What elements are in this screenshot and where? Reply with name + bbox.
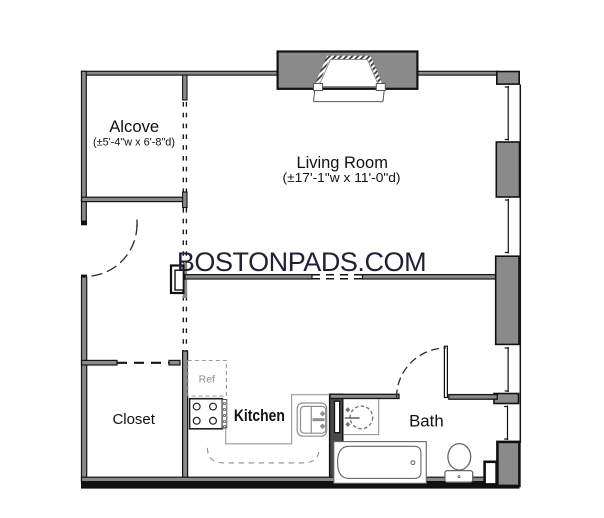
svg-text:Ref: Ref <box>199 374 215 386</box>
svg-text:Bath: Bath <box>409 412 444 430</box>
svg-text:Closet: Closet <box>112 411 155 428</box>
svg-text:BOSTONPADS.COM: BOSTONPADS.COM <box>177 247 426 277</box>
svg-text:Alcove: Alcove <box>109 117 159 136</box>
svg-text:Kitchen: Kitchen <box>234 406 285 425</box>
svg-text:(±17'-1"w x 11'-0"d): (±17'-1"w x 11'-0"d) <box>283 170 401 185</box>
svg-text:(±5'-4"w x 6'-8"d): (±5'-4"w x 6'-8"d) <box>93 136 175 148</box>
